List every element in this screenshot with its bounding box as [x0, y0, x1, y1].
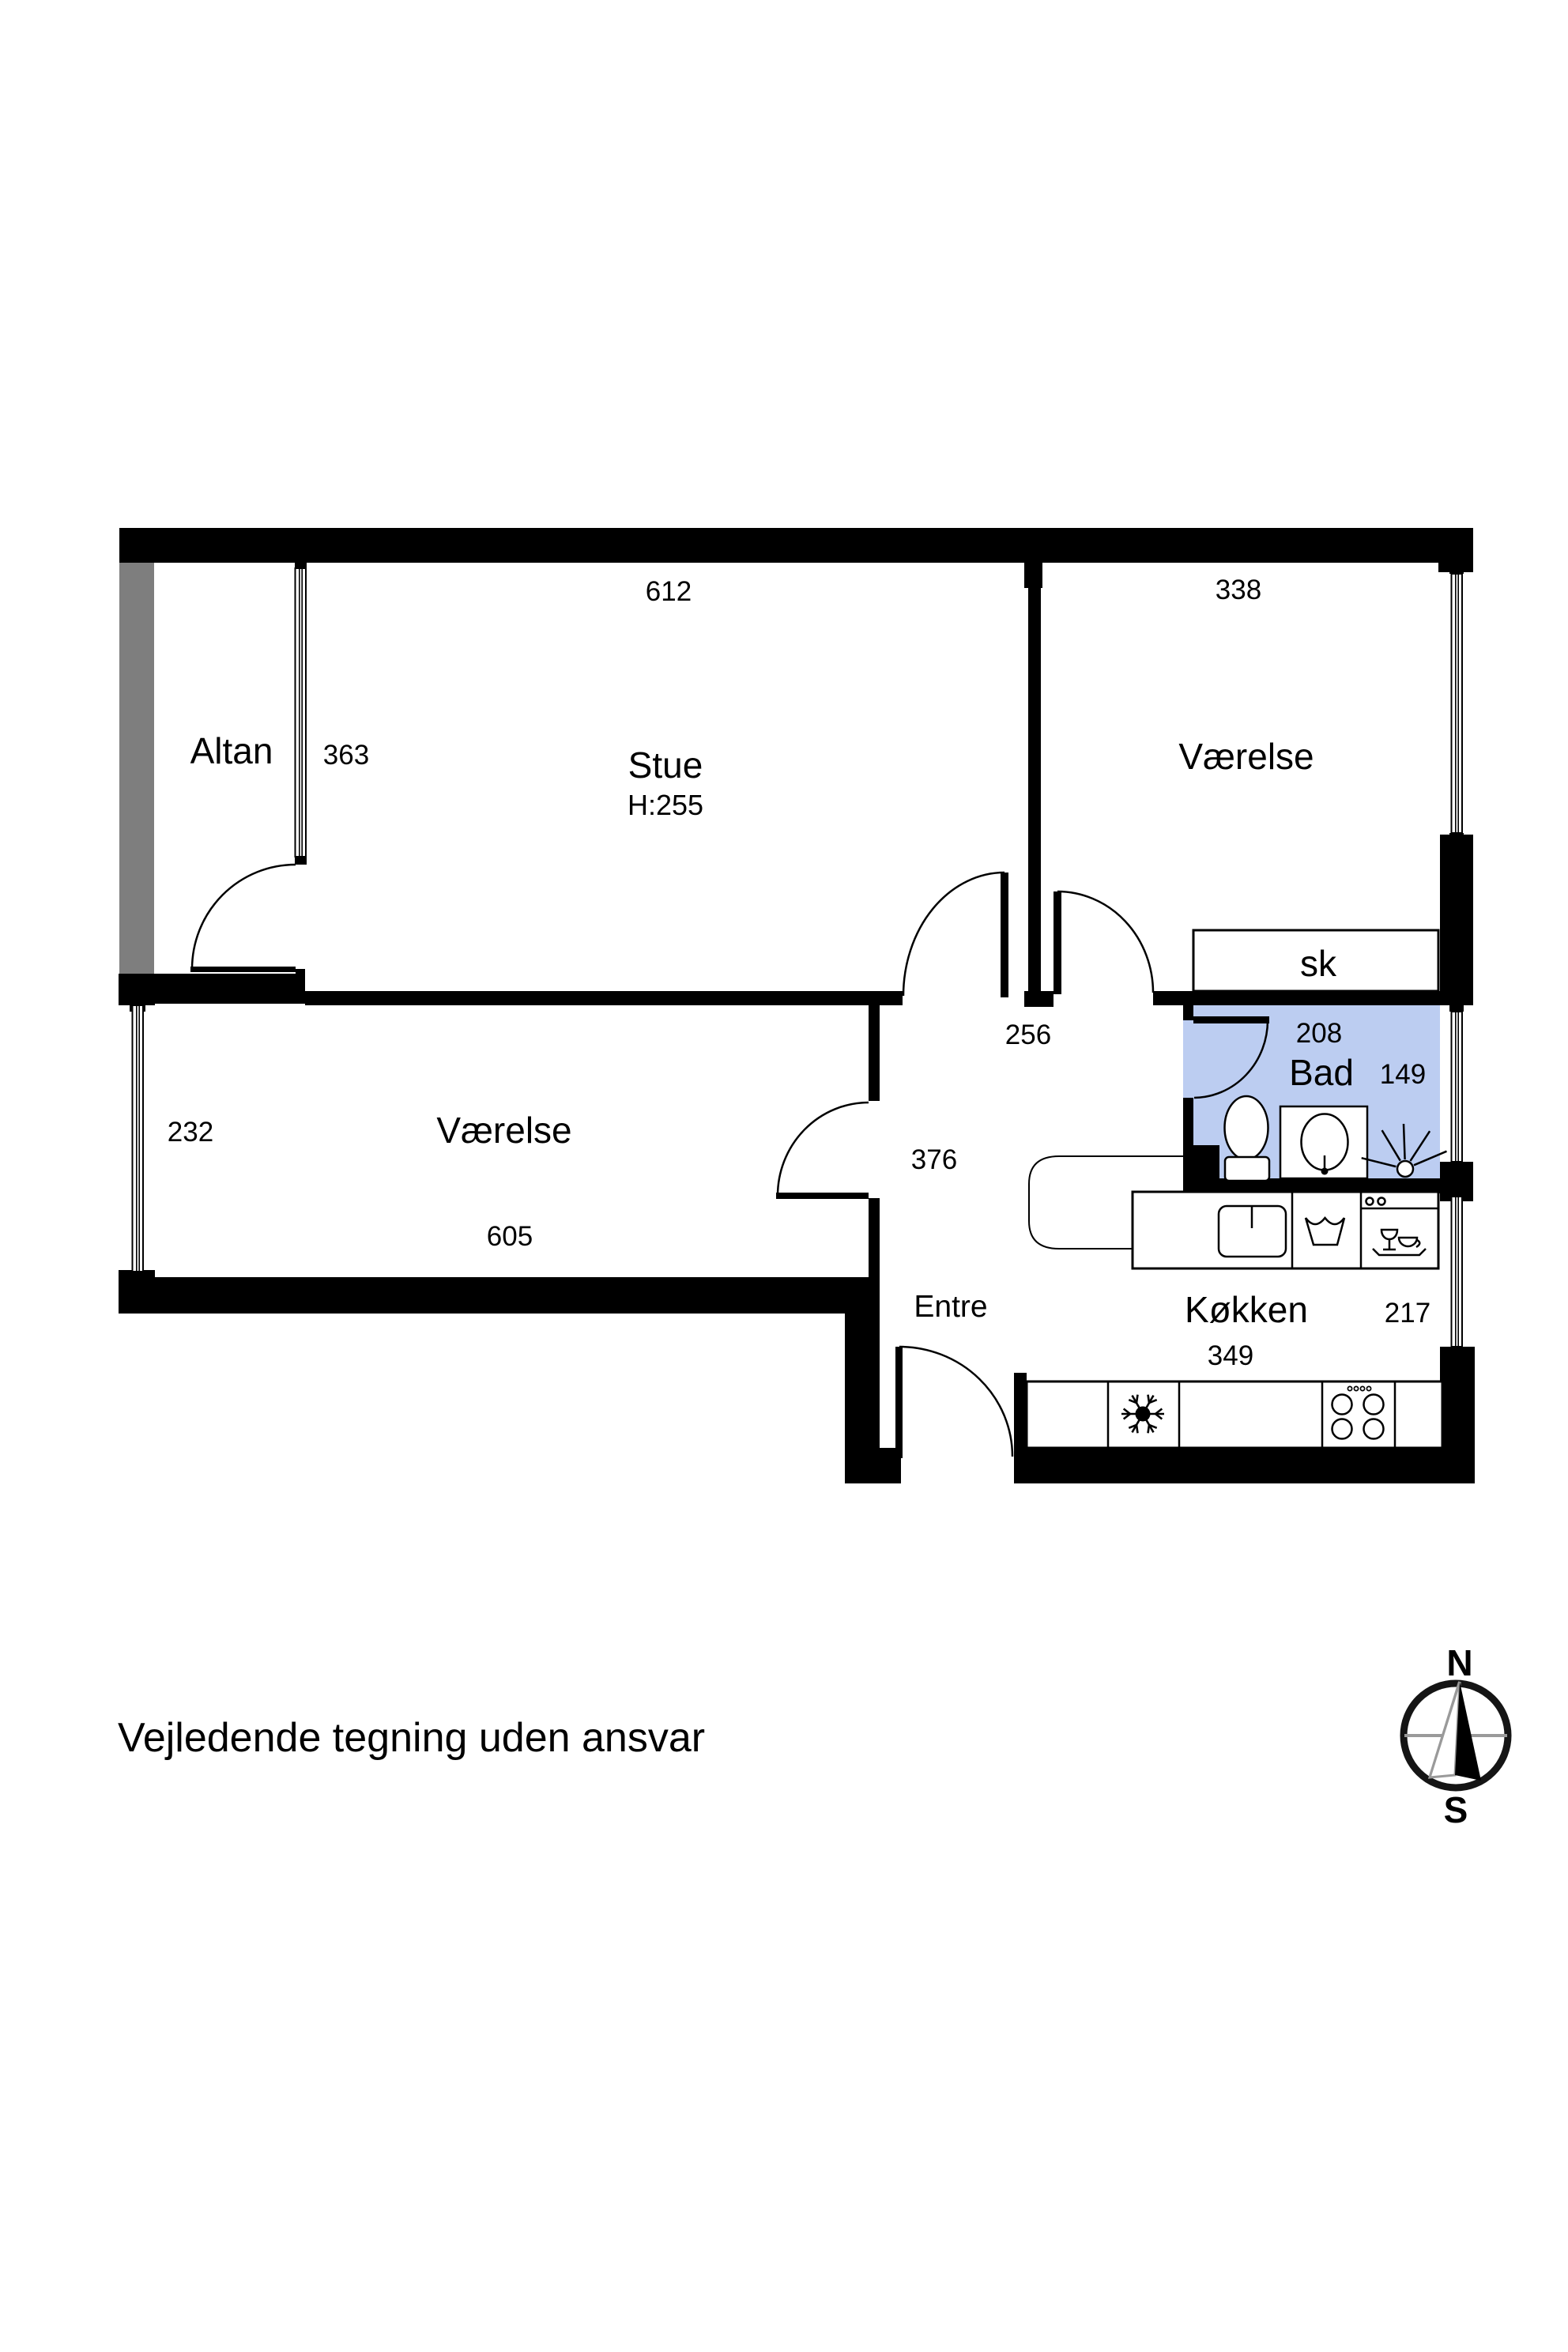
svg-text:338: 338 — [1216, 575, 1261, 605]
svg-text:sk: sk — [1300, 943, 1337, 984]
svg-text:Værelse: Værelse — [436, 1110, 571, 1151]
svg-text:349: 349 — [1208, 1340, 1253, 1371]
svg-text:Bad: Bad — [1289, 1052, 1354, 1093]
svg-text:Altan: Altan — [190, 730, 273, 771]
svg-text:612: 612 — [646, 576, 692, 607]
svg-text:Værelse: Værelse — [1178, 736, 1314, 777]
svg-text:Vejledende tegning uden ansvar: Vejledende tegning uden ansvar — [118, 1715, 705, 1761]
svg-text:217: 217 — [1385, 1298, 1430, 1329]
svg-text:Køkken: Køkken — [1185, 1289, 1308, 1330]
svg-text:605: 605 — [487, 1221, 533, 1252]
svg-text:S: S — [1444, 1789, 1468, 1830]
svg-text:376: 376 — [911, 1144, 957, 1175]
svg-text:363: 363 — [323, 740, 369, 771]
svg-text:N: N — [1446, 1642, 1472, 1683]
svg-text:232: 232 — [168, 1117, 213, 1148]
svg-text:149: 149 — [1380, 1059, 1426, 1090]
svg-text:Stue: Stue — [628, 744, 703, 786]
svg-text:H:255: H:255 — [628, 789, 703, 821]
svg-text:256: 256 — [1005, 1020, 1051, 1050]
svg-text:Entre: Entre — [914, 1290, 987, 1324]
svg-text:208: 208 — [1296, 1018, 1342, 1049]
